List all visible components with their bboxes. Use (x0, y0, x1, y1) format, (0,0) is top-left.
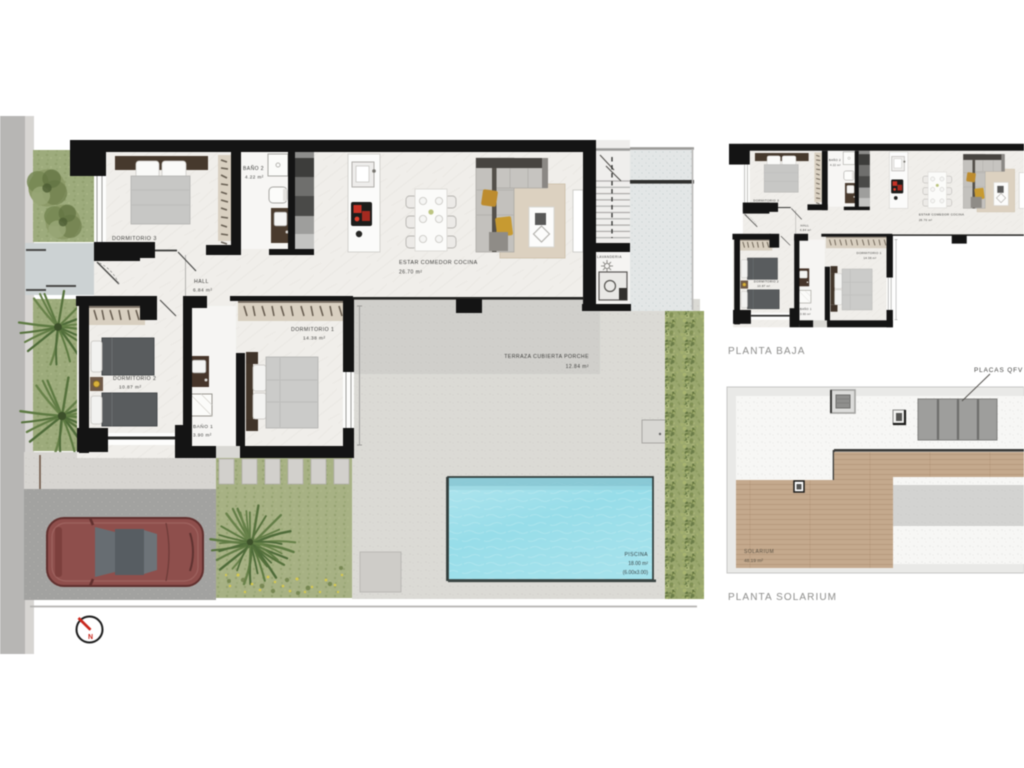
svg-text:18.00 m²: 18.00 m² (628, 561, 648, 567)
svg-text:4.22 m²: 4.22 m² (245, 175, 264, 180)
svg-text:ESTAR COMEDOR COCINA: ESTAR COMEDOR COCINA (399, 260, 478, 266)
svg-text:10.87 m²: 10.87 m² (119, 385, 142, 391)
svg-text:DORMITORIO 1: DORMITORIO 1 (291, 327, 334, 333)
svg-text:DORMITORIO 3: DORMITORIO 3 (112, 236, 157, 242)
svg-text:3.90 m²: 3.90 m² (193, 433, 212, 438)
svg-text:HALL: HALL (194, 279, 209, 285)
svg-text:14.38 m²: 14.38 m² (303, 336, 326, 342)
svg-text:48.19 m²: 48.19 m² (744, 558, 763, 564)
svg-text:12.84 m²: 12.84 m² (566, 364, 589, 370)
svg-text:PLANTA BAJA: PLANTA BAJA (728, 346, 806, 357)
svg-text:6.84 m²: 6.84 m² (193, 288, 212, 294)
svg-text:26.70 m²: 26.70 m² (399, 270, 422, 276)
svg-text:PLANTA SOLARIUM: PLANTA SOLARIUM (728, 592, 837, 603)
svg-text:N: N (88, 634, 93, 641)
svg-text:SOLARIUM: SOLARIUM (744, 549, 774, 555)
svg-text:DORMITORIO 2: DORMITORIO 2 (113, 376, 156, 382)
svg-text:BAÑO 1: BAÑO 1 (193, 423, 213, 430)
svg-text:(6.00x3.00): (6.00x3.00) (623, 570, 649, 576)
svg-text:PLACAS QFV: PLACAS QFV (974, 367, 1023, 374)
svg-text:BAÑO 2: BAÑO 2 (243, 165, 264, 172)
svg-text:TERRAZA CUBIERTA PORCHE: TERRAZA CUBIERTA PORCHE (504, 354, 589, 360)
svg-text:LAVANDERIA: LAVANDERIA (597, 255, 622, 259)
svg-text:PISCINA: PISCINA (624, 552, 648, 558)
